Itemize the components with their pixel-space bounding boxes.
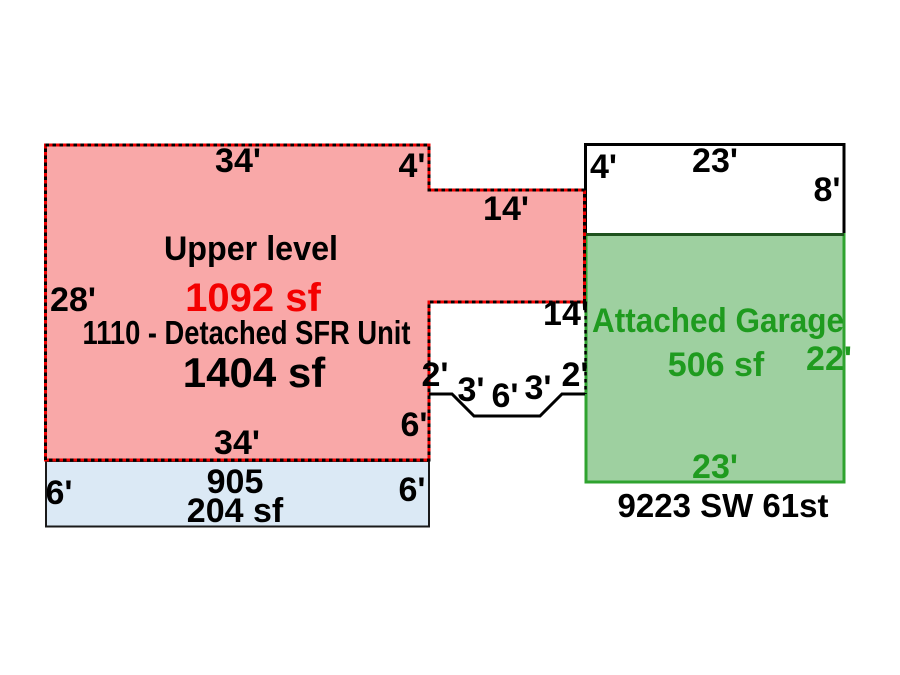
svg-text:6': 6' xyxy=(492,377,519,415)
svg-text:2': 2' xyxy=(422,356,449,394)
svg-text:506 sf: 506 sf xyxy=(668,346,765,384)
svg-text:Upper level: Upper level xyxy=(164,230,338,268)
svg-text:34': 34' xyxy=(214,424,260,462)
svg-text:9223 SW 61st: 9223 SW 61st xyxy=(618,487,829,524)
svg-text:6': 6' xyxy=(401,406,428,444)
svg-text:4': 4' xyxy=(590,148,617,186)
svg-text:22': 22' xyxy=(806,340,852,378)
svg-text:8': 8' xyxy=(814,171,841,209)
svg-text:1404 sf: 1404 sf xyxy=(183,349,326,396)
svg-text:3': 3' xyxy=(525,369,552,407)
svg-text:34': 34' xyxy=(215,142,261,180)
svg-text:4': 4' xyxy=(399,147,426,185)
svg-text:14': 14' xyxy=(543,295,589,333)
svg-text:6': 6' xyxy=(399,471,426,509)
svg-text:2': 2' xyxy=(562,356,589,394)
svg-text:14': 14' xyxy=(483,190,529,228)
svg-text:204 sf: 204 sf xyxy=(187,492,284,530)
svg-text:1110 - Detached SFR Unit: 1110 - Detached SFR Unit xyxy=(83,314,411,351)
svg-text:3': 3' xyxy=(458,371,485,409)
svg-text:Attached Garage: Attached Garage xyxy=(592,302,844,340)
svg-text:23': 23' xyxy=(692,142,738,180)
svg-text:6': 6' xyxy=(46,474,73,512)
svg-text:23': 23' xyxy=(692,448,738,486)
